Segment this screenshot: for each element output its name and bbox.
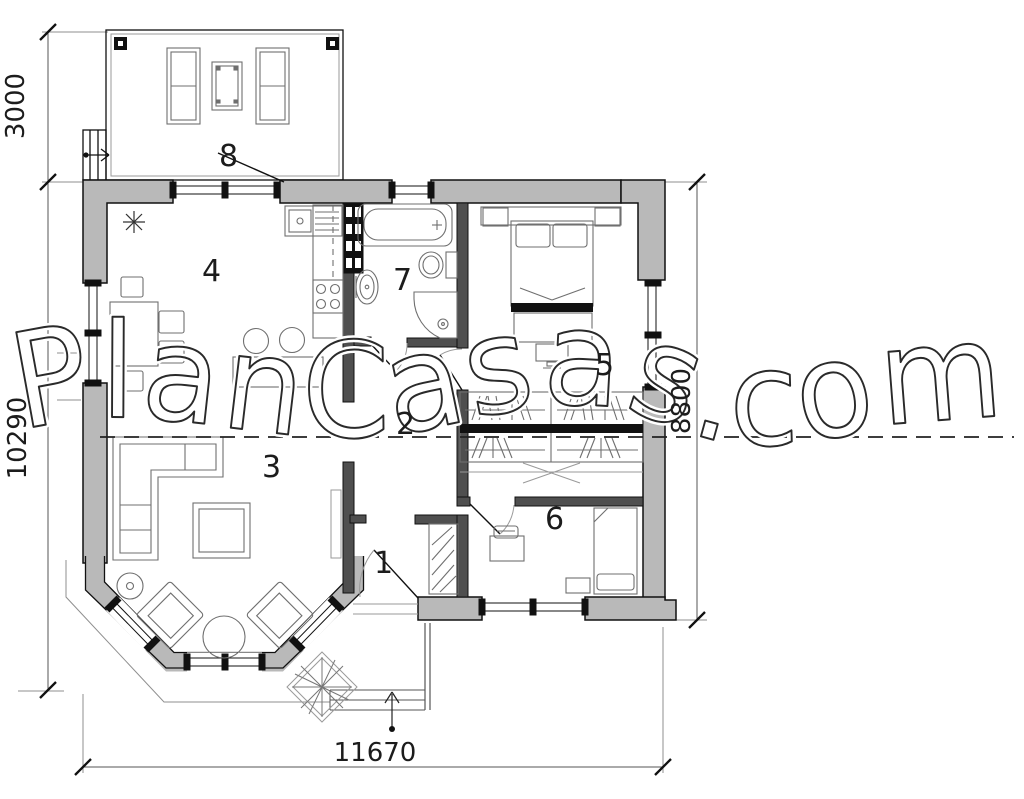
watermark: PlanCasas.com PlanCasas.com (0, 281, 1011, 478)
dim-bottom-width: 11670 (334, 738, 417, 768)
coffee-table (203, 616, 245, 658)
room-label-2: 2 (396, 407, 415, 442)
dim-right-height: 8800 (667, 368, 697, 434)
watermark-text: PlanCasas.com (0, 281, 1011, 478)
stove (313, 280, 343, 313)
room-label-3: 3 (262, 450, 281, 485)
room-label-4: 4 (202, 254, 221, 289)
entry-arrow (385, 692, 399, 732)
tv-bench (331, 490, 341, 558)
hall-wardrobe (429, 524, 458, 594)
bay-windows (105, 596, 345, 671)
room-label-5: 5 (595, 348, 614, 383)
terrace-lounger (167, 48, 200, 124)
bathtub (358, 204, 452, 246)
plant (287, 652, 357, 722)
room-label-7: 7 (393, 263, 412, 298)
desk (490, 526, 524, 561)
light-symbol (123, 211, 145, 233)
toilet (419, 252, 457, 278)
room-label-8: 8 (219, 139, 238, 174)
terrace (83, 30, 343, 180)
terrace-lounger (256, 48, 289, 124)
dim-terrace-depth: 3000 (1, 73, 31, 139)
bedroom6-door-leaf (470, 504, 500, 534)
svg-text:PlanCasas.com: PlanCasas.com (0, 281, 1011, 478)
room-label-1: 1 (374, 546, 393, 581)
bath-sink (356, 270, 378, 304)
terrace-steps (83, 130, 109, 180)
floor-plan-canvas: PlanCasas.com PlanCasas.com 1 2 3 4 5 6 … (0, 0, 1024, 799)
terrace-table (212, 62, 242, 110)
floor-lamp (117, 573, 143, 599)
room-label-6: 6 (545, 502, 564, 537)
porch (66, 560, 430, 732)
ottoman (193, 503, 250, 558)
bed-single (566, 508, 637, 594)
dim-left-height: 10290 (3, 397, 33, 480)
